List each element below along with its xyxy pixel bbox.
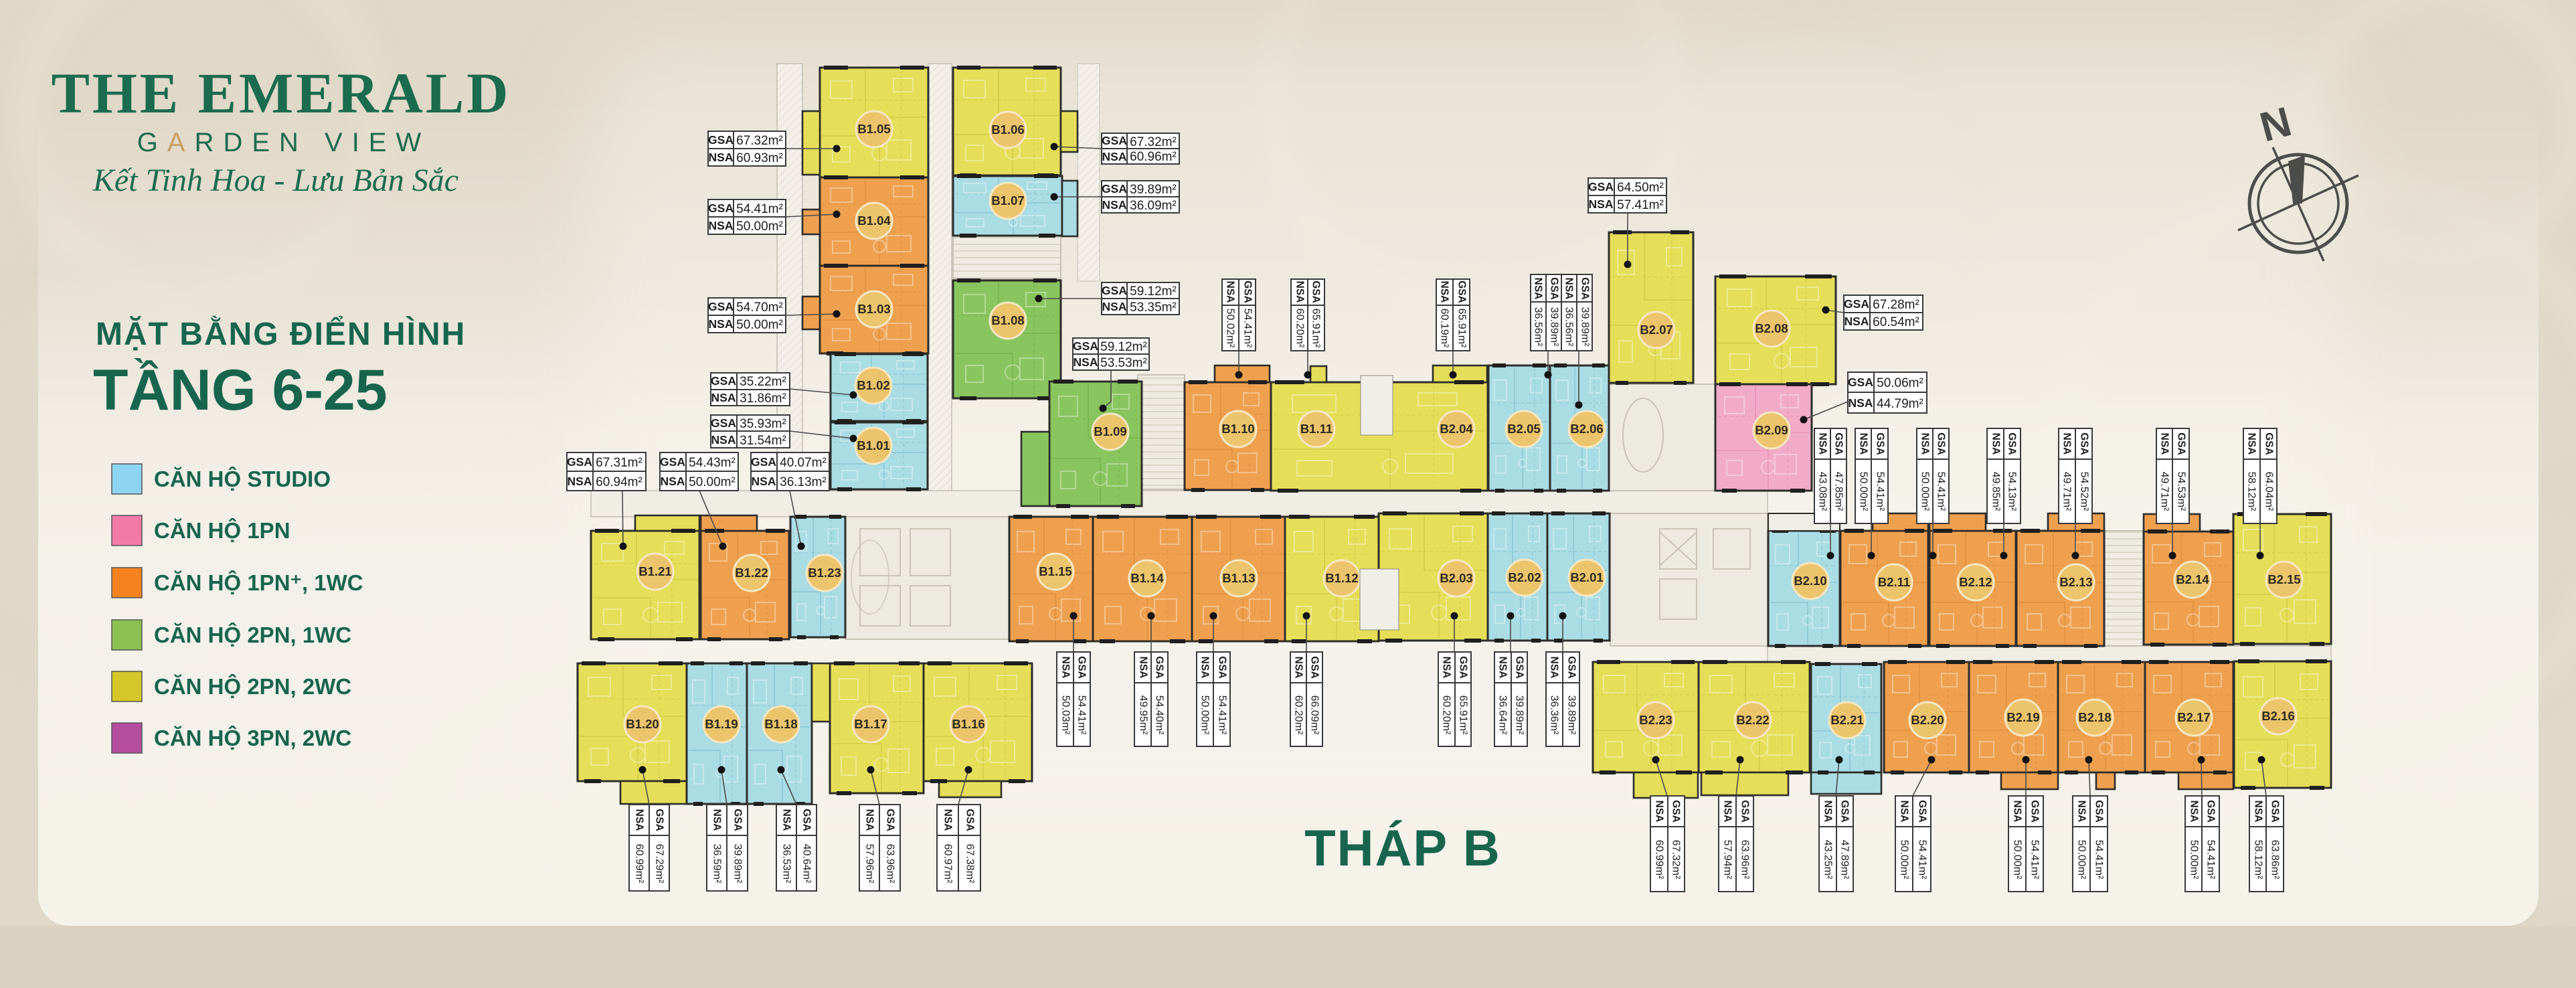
svg-text:B1.04: B1.04 bbox=[857, 214, 891, 228]
svg-text:40.07m²: 40.07m² bbox=[780, 456, 827, 470]
svg-text:NSA: NSA bbox=[1102, 150, 1127, 163]
svg-text:GSA: GSA bbox=[1839, 800, 1851, 823]
svg-text:GSA: GSA bbox=[2029, 800, 2041, 823]
svg-text:67.31m²: 67.31m² bbox=[596, 456, 642, 470]
svg-text:B2.01: B2.01 bbox=[1570, 570, 1603, 584]
svg-text:GSA: GSA bbox=[708, 201, 734, 215]
svg-text:B2.18: B2.18 bbox=[2078, 710, 2111, 724]
svg-text:GSA: GSA bbox=[2079, 432, 2090, 455]
svg-text:54.52m²: 54.52m² bbox=[2079, 472, 2090, 511]
svg-text:GSA: GSA bbox=[2176, 432, 2187, 455]
svg-text:39.89m²: 39.89m² bbox=[732, 844, 744, 884]
svg-text:60.99m²: 60.99m² bbox=[634, 844, 645, 884]
svg-text:58.12m²: 58.12m² bbox=[2246, 472, 2257, 511]
svg-text:B1.06: B1.06 bbox=[991, 122, 1024, 137]
svg-text:54.41m²: 54.41m² bbox=[2205, 840, 2217, 880]
svg-text:NSA: NSA bbox=[2188, 801, 2200, 823]
svg-text:GSA: GSA bbox=[708, 300, 734, 313]
svg-text:67.32m²: 67.32m² bbox=[1670, 840, 1682, 880]
svg-text:B1.02: B1.02 bbox=[857, 378, 889, 392]
svg-text:36.13m²: 36.13m² bbox=[780, 475, 827, 489]
svg-text:67.32m²: 67.32m² bbox=[736, 134, 783, 148]
svg-text:NSA: NSA bbox=[1102, 198, 1127, 212]
svg-text:B2.06: B2.06 bbox=[1570, 422, 1603, 436]
svg-text:60.20m²: 60.20m² bbox=[1441, 695, 1452, 735]
svg-text:GSA: GSA bbox=[1739, 800, 1751, 823]
svg-text:NSA: NSA bbox=[709, 317, 734, 331]
svg-text:54.41m²: 54.41m² bbox=[736, 202, 783, 216]
svg-text:B2.20: B2.20 bbox=[1911, 713, 1944, 727]
svg-text:GSA: GSA bbox=[1102, 284, 1127, 297]
svg-text:B2.12: B2.12 bbox=[1959, 575, 1992, 589]
svg-text:40.64m²: 40.64m² bbox=[801, 844, 812, 884]
svg-text:B2.07: B2.07 bbox=[1640, 323, 1672, 337]
svg-text:B2.23: B2.23 bbox=[1639, 713, 1672, 727]
svg-text:60.99m²: 60.99m² bbox=[1654, 840, 1665, 880]
svg-text:50.00m²: 50.00m² bbox=[1899, 840, 1910, 880]
svg-text:64.50m²: 64.50m² bbox=[1617, 181, 1664, 195]
svg-text:THÁP B: THÁP B bbox=[1304, 820, 1501, 877]
svg-text:59.12m²: 59.12m² bbox=[1130, 284, 1177, 299]
svg-text:GSA: GSA bbox=[1833, 432, 1844, 455]
svg-text:B1.19: B1.19 bbox=[705, 717, 738, 731]
svg-text:47.89m²: 47.89m² bbox=[1839, 840, 1851, 880]
svg-text:49.71m²: 49.71m² bbox=[2159, 472, 2170, 511]
svg-text:50.00m²: 50.00m² bbox=[1919, 472, 1931, 511]
svg-text:B1.17: B1.17 bbox=[854, 717, 887, 731]
svg-text:GSA: GSA bbox=[1217, 656, 1228, 679]
svg-text:GSA: GSA bbox=[1309, 656, 1320, 679]
svg-text:54.70m²: 54.70m² bbox=[736, 301, 783, 315]
svg-text:54.13m²: 54.13m² bbox=[2006, 472, 2018, 511]
svg-text:54.41m²: 54.41m² bbox=[1217, 695, 1228, 735]
svg-text:CĂN HỘ 2PN, 2WC: CĂN HỘ 2PN, 2WC bbox=[154, 673, 351, 699]
svg-text:B1.08: B1.08 bbox=[991, 313, 1024, 327]
svg-text:B2.13: B2.13 bbox=[2059, 575, 2092, 589]
svg-text:54.40m²: 54.40m² bbox=[1154, 695, 1165, 735]
svg-text:B2.04: B2.04 bbox=[1440, 422, 1473, 436]
svg-text:47.85m²: 47.85m² bbox=[1833, 472, 1844, 511]
svg-text:NSA: NSA bbox=[711, 391, 736, 404]
svg-text:GSA: GSA bbox=[567, 455, 592, 469]
svg-text:GSA: GSA bbox=[2205, 800, 2217, 823]
svg-text:NSA: NSA bbox=[1722, 801, 1733, 823]
svg-text:NSA: NSA bbox=[709, 219, 734, 232]
svg-text:GSA: GSA bbox=[801, 809, 812, 831]
svg-text:36.56m²: 36.56m² bbox=[1563, 307, 1575, 347]
svg-text:GSA: GSA bbox=[2269, 800, 2281, 823]
svg-text:NSA: NSA bbox=[1060, 657, 1071, 679]
svg-text:GSA: GSA bbox=[964, 809, 976, 831]
svg-text:60.54m²: 60.54m² bbox=[1873, 315, 1919, 329]
svg-text:NSA: NSA bbox=[1225, 281, 1236, 303]
svg-text:GSA: GSA bbox=[751, 455, 776, 469]
svg-text:NSA: NSA bbox=[1294, 281, 1306, 303]
svg-text:67.32m²: 67.32m² bbox=[1130, 135, 1177, 149]
svg-text:GSA: GSA bbox=[1242, 280, 1254, 303]
svg-text:63.96m²: 63.96m² bbox=[885, 844, 896, 884]
svg-text:NSA: NSA bbox=[2253, 801, 2264, 823]
svg-text:50.00m²: 50.00m² bbox=[2076, 840, 2087, 880]
svg-text:54.41m²: 54.41m² bbox=[1242, 309, 1254, 348]
svg-text:GSA: GSA bbox=[1588, 180, 1614, 193]
svg-text:NSA: NSA bbox=[1654, 801, 1665, 823]
svg-text:50.00m²: 50.00m² bbox=[2012, 840, 2023, 880]
svg-text:GSA: GSA bbox=[1848, 376, 1873, 389]
svg-text:65.91m²: 65.91m² bbox=[1458, 695, 1469, 735]
svg-text:B2.11: B2.11 bbox=[1878, 575, 1910, 589]
svg-text:NSA: NSA bbox=[752, 475, 776, 488]
svg-text:43.25m²: 43.25m² bbox=[1822, 840, 1834, 880]
svg-text:B2.09: B2.09 bbox=[1755, 423, 1788, 437]
svg-text:50.00m²: 50.00m² bbox=[1199, 695, 1211, 735]
svg-text:GSA: GSA bbox=[732, 809, 744, 831]
svg-text:B1.18: B1.18 bbox=[764, 717, 797, 731]
svg-text:36.56m²: 36.56m² bbox=[1533, 307, 1544, 347]
svg-text:67.38m²: 67.38m² bbox=[964, 844, 976, 884]
svg-text:43.08m²: 43.08m² bbox=[1817, 472, 1828, 511]
svg-text:39.89m²: 39.89m² bbox=[1549, 307, 1560, 347]
svg-text:GSA: GSA bbox=[2006, 432, 2018, 455]
svg-text:50.00m²: 50.00m² bbox=[1858, 472, 1869, 511]
svg-text:39.89m²: 39.89m² bbox=[1566, 695, 1577, 735]
svg-text:NSA: NSA bbox=[661, 475, 685, 488]
svg-text:50.00m²: 50.00m² bbox=[689, 475, 736, 489]
svg-text:53.35m²: 53.35m² bbox=[1130, 301, 1177, 315]
svg-text:B2.16: B2.16 bbox=[2261, 709, 2294, 723]
svg-text:39.89m²: 39.89m² bbox=[1579, 307, 1591, 347]
svg-text:36.53m²: 36.53m² bbox=[781, 844, 792, 884]
svg-text:35.22m²: 35.22m² bbox=[740, 375, 786, 389]
svg-text:NSA: NSA bbox=[1899, 801, 1910, 823]
svg-text:50.00m²: 50.00m² bbox=[2188, 840, 2200, 880]
svg-text:54.41m²: 54.41m² bbox=[1875, 472, 1886, 511]
svg-text:67.29m²: 67.29m² bbox=[654, 844, 665, 884]
svg-text:B1.10: B1.10 bbox=[1221, 422, 1254, 436]
svg-text:CĂN HỘ 1PN: CĂN HỘ 1PN bbox=[154, 517, 290, 543]
svg-text:50.00m²: 50.00m² bbox=[736, 220, 783, 234]
svg-text:GSA: GSA bbox=[711, 374, 736, 388]
svg-text:NSA: NSA bbox=[864, 809, 875, 831]
svg-text:31.86m²: 31.86m² bbox=[740, 392, 786, 406]
svg-text:B2.05: B2.05 bbox=[1507, 422, 1540, 436]
svg-text:59.12m²: 59.12m² bbox=[1100, 340, 1147, 354]
svg-text:NSA: NSA bbox=[2076, 801, 2087, 823]
svg-text:65.91m²: 65.91m² bbox=[1456, 309, 1468, 348]
svg-text:B2.21: B2.21 bbox=[1830, 713, 1863, 727]
svg-text:CĂN HỘ 3PN, 2WC: CĂN HỘ 3PN, 2WC bbox=[154, 725, 351, 750]
svg-text:NSA: NSA bbox=[634, 809, 645, 831]
svg-text:B2.02: B2.02 bbox=[1508, 570, 1541, 584]
svg-text:GSA: GSA bbox=[1549, 277, 1560, 300]
svg-text:GSA: GSA bbox=[1154, 656, 1165, 679]
svg-text:50.02m²: 50.02m² bbox=[1225, 309, 1236, 348]
svg-text:CĂN HỘ 1PN⁺, 1WC: CĂN HỘ 1PN⁺, 1WC bbox=[154, 570, 363, 595]
svg-text:54.53m²: 54.53m² bbox=[2176, 472, 2187, 511]
svg-text:B2.15: B2.15 bbox=[2267, 572, 2300, 586]
svg-text:36.64m²: 36.64m² bbox=[1497, 695, 1509, 735]
svg-text:NSA: NSA bbox=[1817, 433, 1828, 455]
svg-text:NSA: NSA bbox=[1199, 657, 1211, 679]
svg-text:B1.11: B1.11 bbox=[1300, 422, 1333, 436]
svg-text:NSA: NSA bbox=[1844, 315, 1869, 328]
svg-text:NSA: NSA bbox=[1441, 657, 1452, 679]
svg-text:B1.09: B1.09 bbox=[1094, 424, 1126, 438]
svg-text:B1.12: B1.12 bbox=[1325, 571, 1358, 585]
svg-text:GSA: GSA bbox=[1076, 656, 1088, 679]
svg-text:60.94m²: 60.94m² bbox=[596, 475, 642, 489]
svg-text:NSA: NSA bbox=[1102, 300, 1127, 313]
svg-text:GSA: GSA bbox=[1102, 182, 1127, 195]
svg-text:B1.15: B1.15 bbox=[1039, 564, 1071, 578]
svg-text:B2.14: B2.14 bbox=[2176, 572, 2209, 586]
svg-text:GSA: GSA bbox=[708, 133, 734, 147]
svg-text:31.54m²: 31.54m² bbox=[740, 434, 786, 448]
svg-text:NSA: NSA bbox=[2061, 433, 2073, 455]
svg-text:B2.03: B2.03 bbox=[1440, 571, 1472, 585]
svg-text:GSA: GSA bbox=[660, 455, 685, 469]
svg-text:GARDEN VIEW: GARDEN VIEW bbox=[137, 128, 431, 157]
svg-text:B2.19: B2.19 bbox=[2006, 710, 2039, 724]
svg-text:B1.05: B1.05 bbox=[857, 122, 890, 136]
svg-text:60.97m²: 60.97m² bbox=[942, 844, 954, 884]
svg-text:B1.07: B1.07 bbox=[991, 193, 1024, 208]
svg-text:CĂN HỘ STUDIO: CĂN HỘ STUDIO bbox=[154, 466, 331, 491]
svg-text:B1.22: B1.22 bbox=[735, 566, 768, 580]
svg-text:GSA: GSA bbox=[711, 416, 736, 430]
svg-text:GSA: GSA bbox=[654, 809, 665, 831]
svg-text:GSA: GSA bbox=[1844, 297, 1869, 311]
svg-text:GSA: GSA bbox=[1102, 134, 1127, 147]
svg-text:Kết Tinh Hoa - Lưu Bản Sắc: Kết Tinh Hoa - Lưu Bản Sắc bbox=[92, 163, 458, 198]
svg-text:36.36m²: 36.36m² bbox=[1549, 695, 1560, 735]
svg-text:60.20m²: 60.20m² bbox=[1293, 695, 1304, 735]
svg-text:GSA: GSA bbox=[1579, 277, 1591, 300]
svg-text:63.86m²: 63.86m² bbox=[2269, 840, 2281, 880]
svg-text:NSA: NSA bbox=[1439, 281, 1450, 303]
svg-text:GSA: GSA bbox=[2263, 432, 2275, 455]
svg-text:B1.03: B1.03 bbox=[857, 302, 890, 316]
svg-text:49.71m²: 49.71m² bbox=[2061, 472, 2073, 511]
svg-text:NSA: NSA bbox=[1074, 355, 1098, 369]
svg-text:NSA: NSA bbox=[1138, 657, 1149, 679]
svg-text:B2.08: B2.08 bbox=[1755, 321, 1788, 335]
svg-text:54.43m²: 54.43m² bbox=[689, 456, 736, 470]
svg-text:60.19m²: 60.19m² bbox=[1439, 309, 1450, 348]
svg-text:NSA: NSA bbox=[1293, 657, 1304, 679]
svg-text:B1.14: B1.14 bbox=[1130, 571, 1164, 585]
svg-text:66.09m²: 66.09m² bbox=[1309, 695, 1320, 735]
svg-text:CĂN HỘ 2PN, 1WC: CĂN HỘ 2PN, 1WC bbox=[154, 622, 351, 647]
svg-text:64.04m²: 64.04m² bbox=[2263, 472, 2275, 511]
svg-text:NSA: NSA bbox=[2012, 801, 2023, 823]
svg-text:36.59m²: 36.59m² bbox=[711, 844, 723, 884]
svg-text:NSA: NSA bbox=[568, 475, 592, 488]
svg-text:39.89m²: 39.89m² bbox=[1514, 695, 1525, 735]
svg-text:NSA: NSA bbox=[1497, 657, 1509, 679]
svg-text:44.79m²: 44.79m² bbox=[1877, 397, 1923, 411]
svg-text:GSA: GSA bbox=[1458, 656, 1469, 679]
svg-text:MẶT BẰNG ĐIỂN HÌNH: MẶT BẰNG ĐIỂN HÌNH bbox=[96, 316, 466, 352]
svg-text:57.94m²: 57.94m² bbox=[1722, 840, 1733, 880]
svg-text:GSA: GSA bbox=[885, 809, 896, 831]
svg-text:50.03m²: 50.03m² bbox=[1060, 695, 1071, 735]
svg-text:65.91m²: 65.91m² bbox=[1310, 309, 1322, 348]
svg-text:NSA: NSA bbox=[709, 151, 734, 164]
svg-text:B2.17: B2.17 bbox=[2177, 710, 2210, 724]
svg-text:GSA: GSA bbox=[1514, 656, 1525, 679]
svg-text:GSA: GSA bbox=[1073, 339, 1098, 353]
svg-text:NSA: NSA bbox=[781, 809, 792, 831]
svg-text:67.28m²: 67.28m² bbox=[1873, 298, 1919, 312]
svg-text:B1.23: B1.23 bbox=[808, 566, 841, 580]
svg-text:B2.22: B2.22 bbox=[1736, 713, 1769, 727]
svg-text:49.95m²: 49.95m² bbox=[1138, 695, 1149, 735]
svg-text:NSA: NSA bbox=[1822, 801, 1834, 823]
svg-text:B1.21: B1.21 bbox=[638, 564, 671, 578]
svg-text:NSA: NSA bbox=[1858, 433, 1869, 455]
svg-text:NSA: NSA bbox=[1919, 433, 1931, 455]
svg-text:GSA: GSA bbox=[1917, 800, 1928, 823]
svg-text:NSA: NSA bbox=[711, 433, 736, 446]
svg-text:NSA: NSA bbox=[1849, 396, 1873, 410]
svg-text:54.41m²: 54.41m² bbox=[1076, 695, 1088, 735]
svg-text:GSA: GSA bbox=[2093, 800, 2105, 823]
svg-text:NSA: NSA bbox=[942, 809, 954, 831]
svg-text:54.41m²: 54.41m² bbox=[2029, 840, 2041, 880]
svg-text:60.96m²: 60.96m² bbox=[1130, 150, 1177, 164]
svg-text:B1.13: B1.13 bbox=[1222, 571, 1255, 585]
svg-text:B1.20: B1.20 bbox=[626, 717, 659, 731]
svg-text:57.41m²: 57.41m² bbox=[1617, 198, 1664, 212]
svg-text:35.93m²: 35.93m² bbox=[740, 417, 786, 431]
svg-text:54.41m²: 54.41m² bbox=[1917, 840, 1928, 880]
svg-text:NSA: NSA bbox=[1589, 197, 1614, 211]
svg-text:58.12m²: 58.12m² bbox=[2253, 840, 2264, 880]
svg-text:63.96m²: 63.96m² bbox=[1739, 840, 1751, 880]
svg-text:50.06m²: 50.06m² bbox=[1877, 376, 1923, 390]
svg-text:57.96m²: 57.96m² bbox=[864, 844, 875, 884]
svg-text:53.53m²: 53.53m² bbox=[1100, 356, 1147, 370]
svg-text:THE EMERALD: THE EMERALD bbox=[52, 61, 511, 125]
svg-text:36.09m²: 36.09m² bbox=[1130, 199, 1177, 213]
svg-text:49.85m²: 49.85m² bbox=[1990, 472, 2002, 511]
svg-text:GSA: GSA bbox=[1456, 280, 1468, 303]
svg-text:NSA: NSA bbox=[2246, 433, 2257, 455]
svg-text:50.00m²: 50.00m² bbox=[736, 318, 783, 332]
svg-text:39.89m²: 39.89m² bbox=[1130, 183, 1177, 197]
svg-text:GSA: GSA bbox=[1875, 432, 1886, 455]
svg-text:GSA: GSA bbox=[1670, 800, 1682, 823]
svg-text:NSA: NSA bbox=[1990, 433, 2002, 455]
svg-text:NSA: NSA bbox=[1549, 657, 1560, 679]
svg-text:B1.16: B1.16 bbox=[952, 717, 984, 731]
svg-text:GSA: GSA bbox=[1566, 656, 1577, 679]
svg-text:NSA: NSA bbox=[1533, 278, 1544, 300]
svg-text:GSA: GSA bbox=[1310, 280, 1322, 303]
svg-text:NSA: NSA bbox=[2159, 433, 2170, 455]
svg-text:60.93m²: 60.93m² bbox=[736, 151, 783, 165]
svg-text:60.20m²: 60.20m² bbox=[1294, 309, 1306, 348]
svg-text:54.41m²: 54.41m² bbox=[1936, 472, 1947, 511]
svg-text:GSA: GSA bbox=[1936, 432, 1947, 455]
svg-text:B2.10: B2.10 bbox=[1794, 574, 1826, 588]
svg-text:54.41m²: 54.41m² bbox=[2093, 840, 2105, 880]
svg-text:B1.01: B1.01 bbox=[857, 438, 889, 452]
svg-text:TẦNG 6-25: TẦNG 6-25 bbox=[93, 358, 388, 422]
svg-text:NSA: NSA bbox=[1563, 278, 1575, 300]
svg-text:NSA: NSA bbox=[711, 809, 723, 831]
